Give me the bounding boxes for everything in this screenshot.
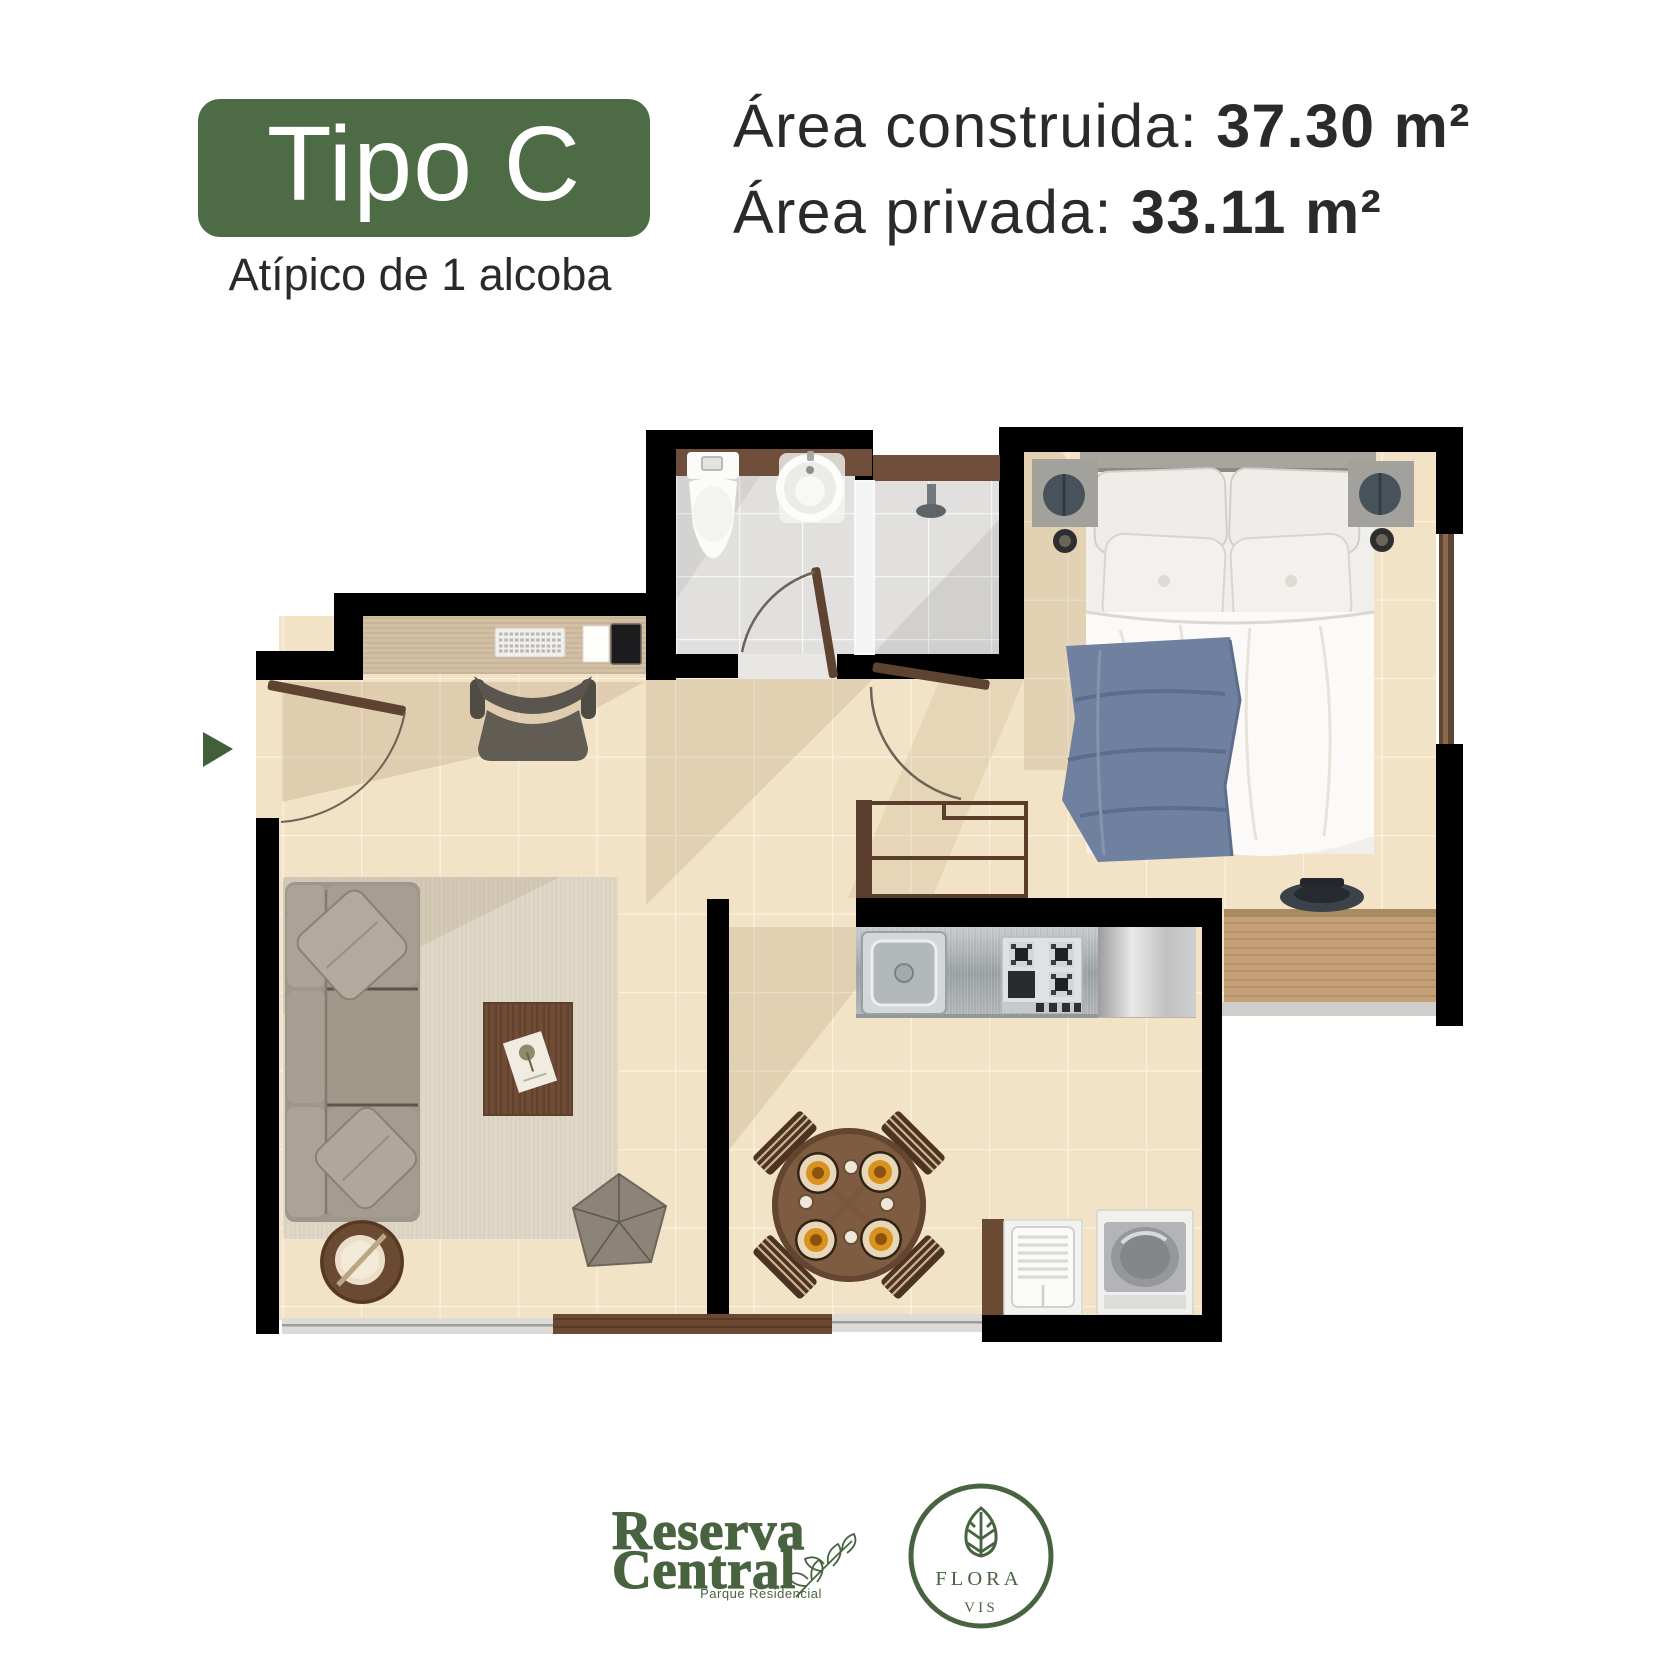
- svg-text:VIS: VIS: [964, 1600, 998, 1616]
- svg-text:Área construida: 37.30 m²: Área construida: 37.30 m²: [733, 92, 1471, 160]
- svg-text:Atípico de 1 alcoba: Atípico de 1 alcoba: [229, 249, 613, 300]
- svg-text:Área privada: 33.11 m²: Área privada: 33.11 m²: [733, 178, 1382, 246]
- svg-text:FLORA: FLORA: [935, 1568, 1022, 1590]
- svg-text:Tipo C: Tipo C: [267, 105, 581, 223]
